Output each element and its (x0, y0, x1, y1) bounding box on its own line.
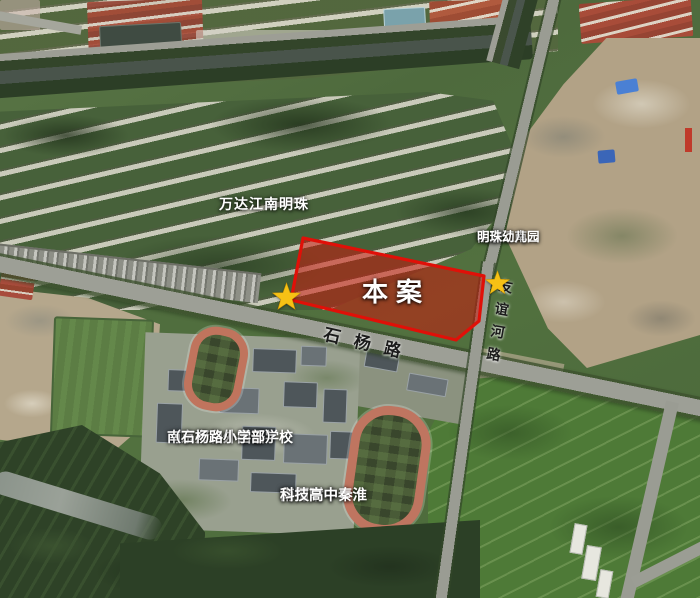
site-label: 本案 (330, 272, 462, 309)
poi-label-line: 明珠幼儿园 (477, 230, 540, 243)
poi-label-line: （石杨路小学部） (167, 429, 279, 448)
star-icon (273, 283, 301, 309)
star-marker-west (271, 282, 302, 313)
satellite-map: 本案 石杨路 友谊河路 万达江南明珠 南京江南 明珠幼儿园 南京郑和外国语学校 … (0, 0, 700, 598)
poi-label-wanda-jiangnan-mingzhu: 万达江南明珠 (219, 194, 309, 214)
star-icon (485, 271, 509, 294)
star-marker-east (484, 270, 511, 297)
poi-label-line: 科技高中 (280, 486, 338, 506)
